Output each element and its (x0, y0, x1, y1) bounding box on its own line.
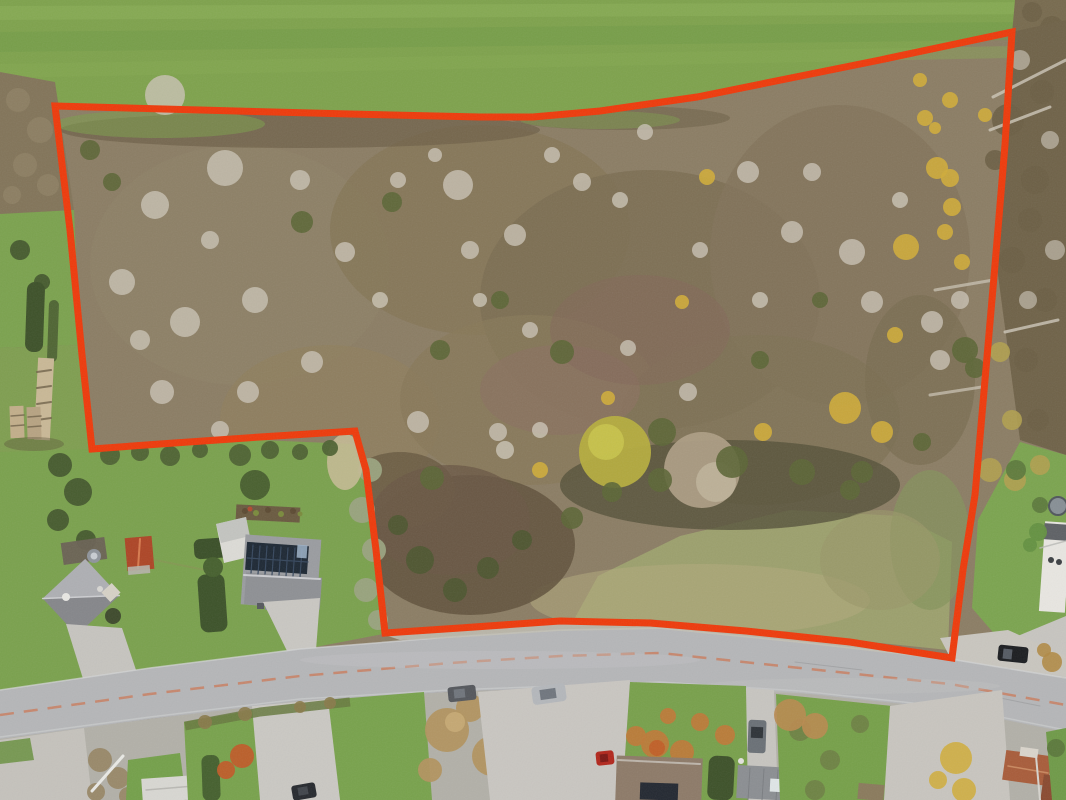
aerial-photo-canvas (0, 0, 1066, 800)
photo-grain (0, 0, 1066, 800)
aerial-photo (0, 0, 1066, 800)
